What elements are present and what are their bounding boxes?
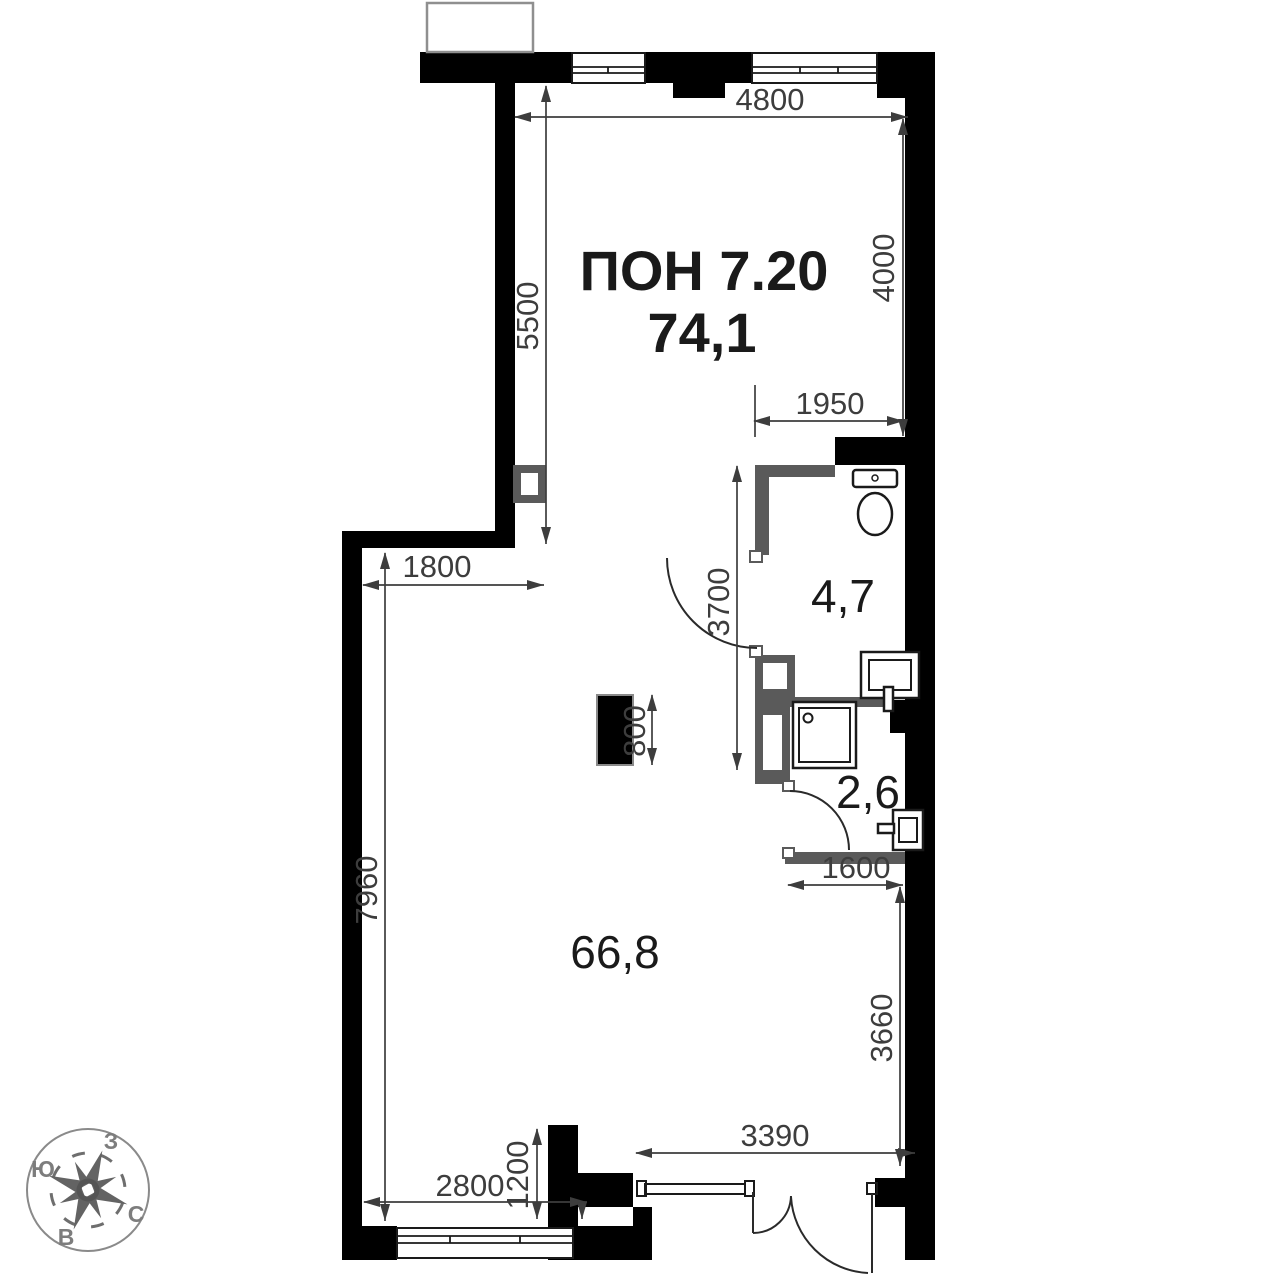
compass-south-label: Ю <box>31 1156 55 1182</box>
bathroom-door-jamb-top <box>750 551 762 562</box>
shower-door-jamb-bottom <box>783 848 794 858</box>
balcony-outline <box>427 3 533 52</box>
window-bottom <box>397 1228 573 1258</box>
shower-tray <box>793 702 856 768</box>
window-top-right <box>752 53 877 83</box>
compass-east-label: В <box>58 1224 75 1250</box>
dim-right-lower: 3660 <box>864 994 899 1063</box>
compass-north-label: С <box>128 1201 145 1227</box>
floor-plan-drawing: 4800 5500 4000 1950 3700 800 1800 7960 1… <box>0 0 1280 1280</box>
floor-plan-page: 4800 5500 4000 1950 3700 800 1800 7960 1… <box>0 0 1280 1280</box>
dim-right-upper: 4000 <box>866 234 901 303</box>
dim-window-width: 2800 <box>436 1168 505 1203</box>
window-top-left <box>572 53 645 83</box>
main-area-label: 66,8 <box>570 926 660 978</box>
dim-left-upper: 5500 <box>510 282 545 351</box>
dim-left-offset: 1800 <box>403 549 472 584</box>
shower-door-jamb-top <box>783 781 794 791</box>
dim-shower-width: 1600 <box>822 850 891 885</box>
total-area-label: 74,1 <box>648 301 757 364</box>
dim-entry-width: 3390 <box>741 1118 810 1153</box>
dim-wc-height: 3700 <box>701 568 736 637</box>
compass-rose: З Ю С В <box>27 1128 149 1251</box>
toilet <box>853 470 897 535</box>
dim-top-width: 4800 <box>736 82 805 117</box>
dim-column: 800 <box>617 705 652 757</box>
compass-west-label: З <box>104 1128 118 1154</box>
wall-niche <box>517 469 542 499</box>
dim-left-lower: 7960 <box>349 856 384 925</box>
shower-area-label: 2,6 <box>836 766 900 818</box>
dim-wc-width: 1950 <box>796 386 865 421</box>
entry-door <box>637 1181 877 1273</box>
bathroom-area-label: 4,7 <box>811 570 875 622</box>
unit-label: ПОН 7.20 <box>580 239 829 302</box>
dim-niche-depth: 1200 <box>500 1141 535 1210</box>
exterior-walls <box>342 52 935 1260</box>
